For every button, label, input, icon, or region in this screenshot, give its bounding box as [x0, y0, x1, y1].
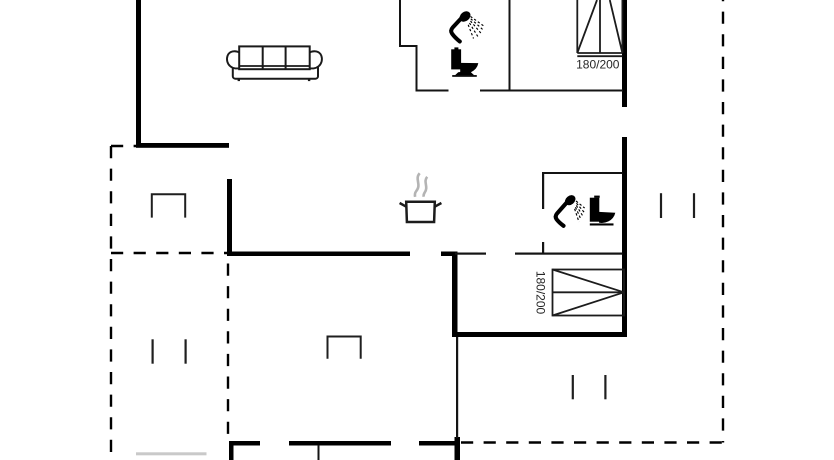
- svg-text:180/200: 180/200: [576, 58, 620, 72]
- svg-text:180/200: 180/200: [534, 271, 548, 315]
